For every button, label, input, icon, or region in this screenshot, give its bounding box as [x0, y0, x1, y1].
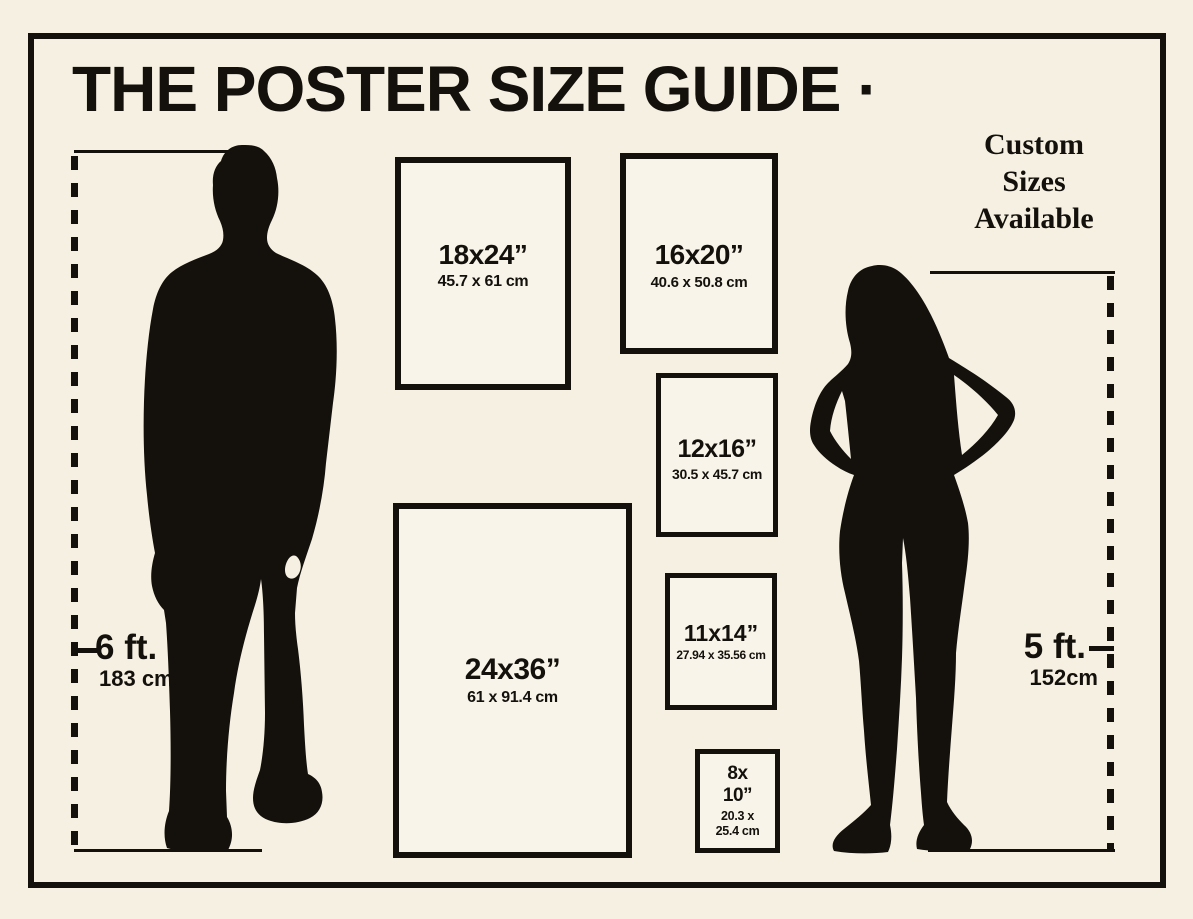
poster-box-12x16: 12x16” 30.5 x 45.7 cm	[656, 373, 778, 537]
poster-box-content: 18x24” 45.7 x 61 cm	[438, 240, 529, 291]
poster-metric-label: 61 x 91.4 cm	[467, 689, 558, 707]
poster-metric-label: 45.7 x 61 cm	[438, 273, 529, 291]
poster-metric-label: 30.5 x 45.7 cm	[672, 466, 762, 482]
woman-silhouette	[810, 263, 1022, 855]
poster-size-guide: THE POSTER SIZE GUIDE · Custom Sizes Ava…	[0, 0, 1193, 919]
man-silhouette-icon	[128, 143, 340, 855]
poster-size-label: 18x24”	[439, 240, 528, 269]
poster-box-24x36: 24x36” 61 x 91.4 cm	[393, 503, 632, 858]
poster-metric-label-line-1: 20.3 x	[721, 809, 754, 824]
poster-box-content: 8x 10” 20.3 x 25.4 cm	[716, 763, 760, 839]
custom-note-line-3: Available	[928, 200, 1140, 237]
poster-box-content: 24x36” 61 x 91.4 cm	[465, 654, 560, 708]
custom-sizes-note: Custom Sizes Available	[928, 126, 1140, 238]
poster-metric-label: 40.6 x 50.8 cm	[651, 274, 748, 291]
poster-box-content: 16x20” 40.6 x 50.8 cm	[651, 240, 748, 290]
page-title: THE POSTER SIZE GUIDE ·	[72, 54, 878, 124]
poster-box-content: 11x14” 27.94 x 35.56 cm	[676, 621, 765, 662]
woman-silhouette-icon	[810, 263, 1022, 855]
poster-metric-label-line-2: 25.4 cm	[716, 824, 760, 839]
poster-size-label: 12x16”	[677, 436, 756, 462]
poster-metric-label: 27.94 x 35.56 cm	[676, 648, 765, 662]
female-height-tick	[1089, 646, 1114, 651]
poster-size-label-line-1: 8x	[727, 763, 747, 785]
poster-size-label: 16x20”	[655, 240, 744, 269]
poster-size-label: 24x36”	[465, 654, 560, 686]
poster-box-16x20: 16x20” 40.6 x 50.8 cm	[620, 153, 778, 354]
poster-size-label: 11x14”	[684, 621, 758, 645]
poster-box-11x14: 11x14” 27.94 x 35.56 cm	[665, 573, 777, 710]
male-height-dashed-line	[71, 156, 78, 850]
custom-note-line-2: Sizes	[928, 163, 1140, 200]
poster-box-content: 12x16” 30.5 x 45.7 cm	[672, 436, 762, 482]
poster-box-8x10: 8x 10” 20.3 x 25.4 cm	[695, 749, 780, 853]
poster-box-18x24: 18x24” 45.7 x 61 cm	[395, 157, 571, 390]
man-silhouette	[128, 143, 340, 855]
custom-note-line-1: Custom	[928, 126, 1140, 163]
poster-size-label-line-2: 10”	[723, 785, 752, 807]
female-height-dashed-line	[1107, 276, 1114, 850]
